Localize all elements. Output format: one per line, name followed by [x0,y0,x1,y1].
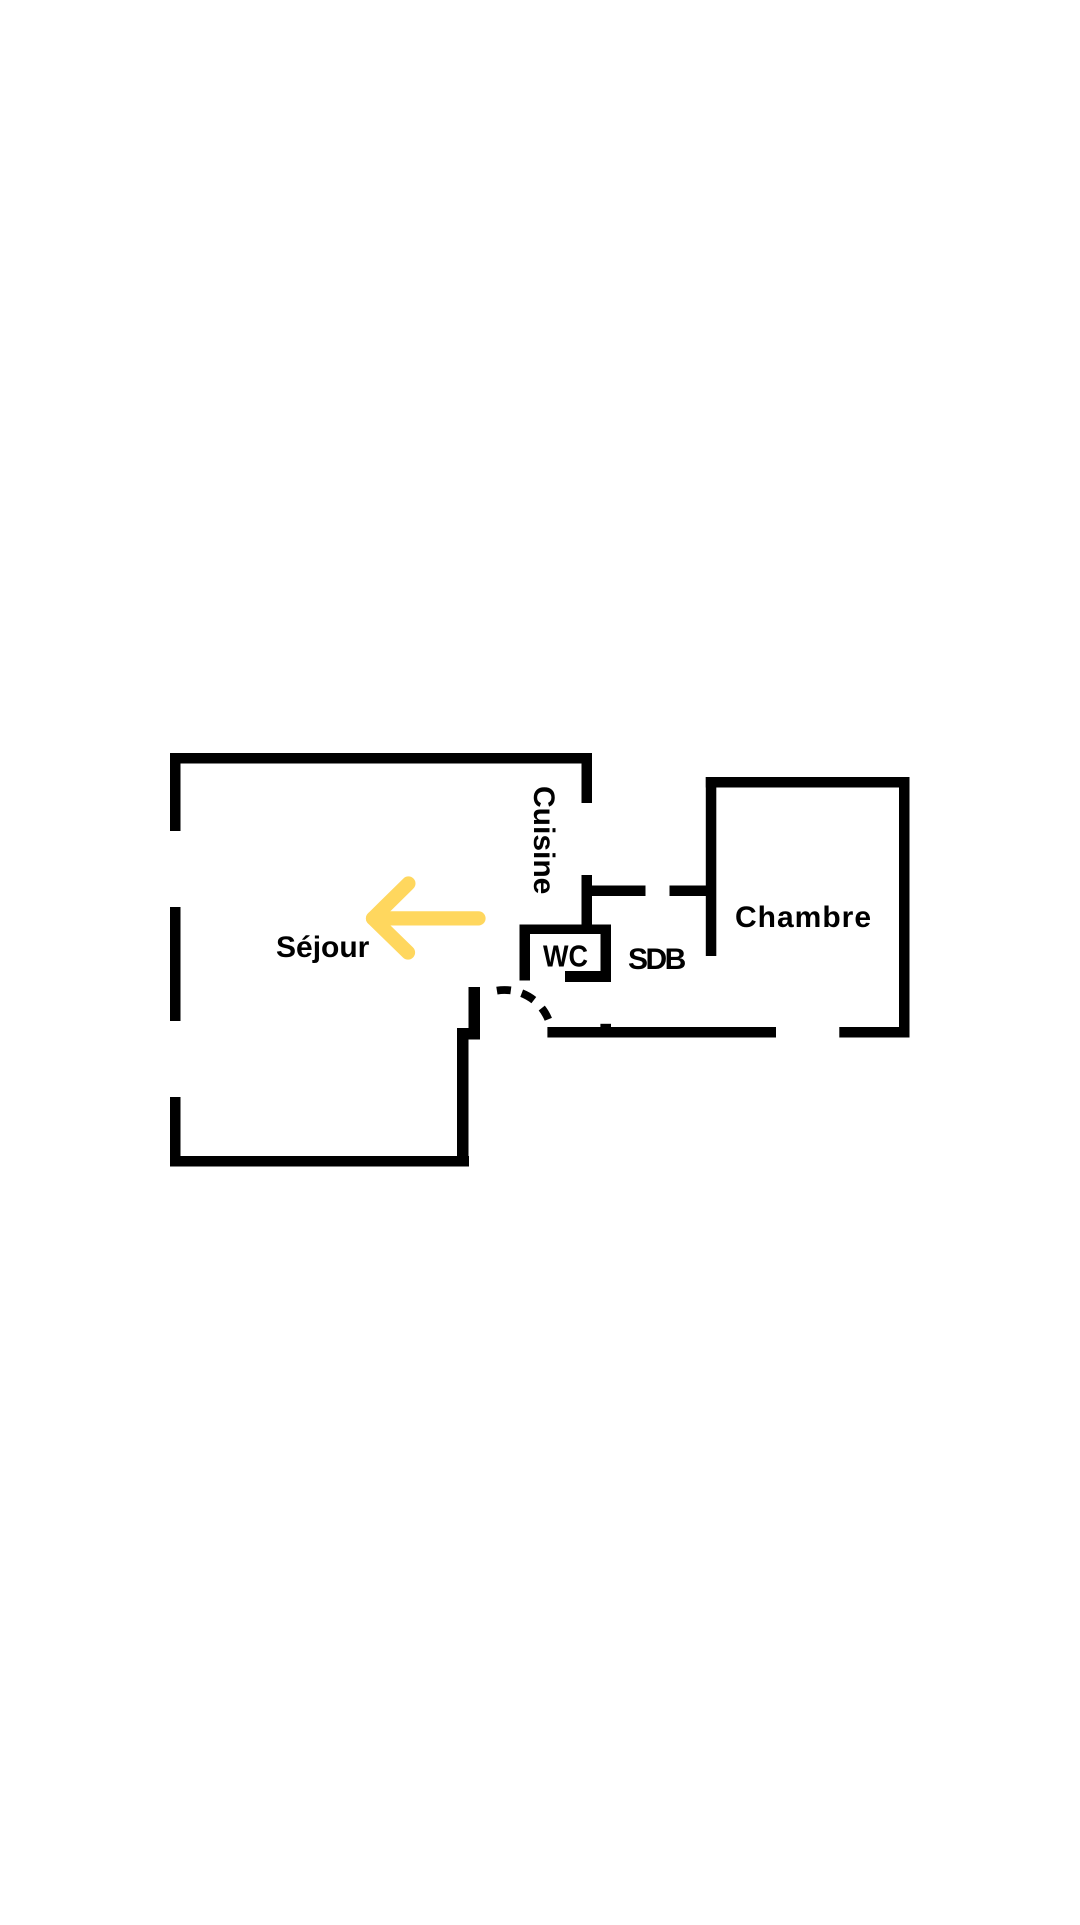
svg-text:SDB: SDB [628,943,686,976]
svg-text:Cuisine: Cuisine [527,786,560,894]
svg-text:Chambre: Chambre [735,901,872,934]
svg-text:WC: WC [543,939,588,974]
svg-text:Séjour: Séjour [276,931,370,964]
